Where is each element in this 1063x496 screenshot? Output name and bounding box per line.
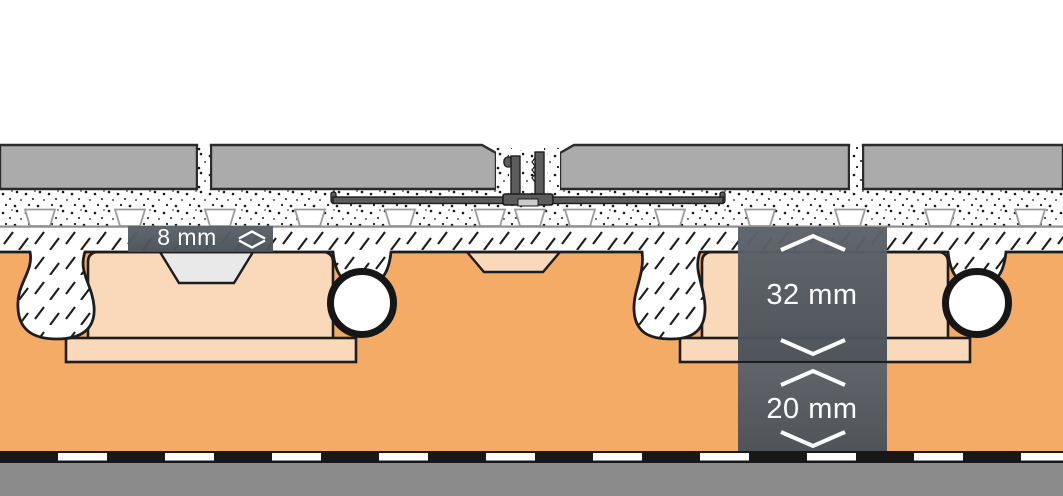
tile — [863, 145, 1063, 189]
floor-cross-section-diagram: 8 mm 32 mm 20 mm — [0, 0, 1063, 496]
anchoring-wing — [552, 197, 723, 204]
label-text: 8 mm — [157, 224, 217, 250]
diagram-canvas: 8 mm 32 mm 20 mm — [0, 0, 1063, 496]
stud-recess — [467, 252, 560, 272]
profile-insert — [518, 199, 538, 206]
grout-joint — [850, 147, 862, 189]
dimension-label-screed: 32 mm — [738, 227, 887, 361]
panel-flange — [66, 338, 356, 362]
grout-joint — [198, 147, 210, 189]
dimension-label-thinbed: 8 mm — [128, 224, 273, 252]
substrate-layer — [0, 462, 1063, 496]
dimension-label-panel: 20 mm — [738, 363, 887, 451]
separation-foil-layer — [0, 451, 1063, 463]
label-text: 32 mm — [766, 279, 857, 311]
foil-dashes — [0, 453, 1063, 461]
anchoring-wing — [333, 197, 504, 204]
label-text: 20 mm — [766, 393, 857, 425]
tile — [211, 145, 496, 189]
tile — [0, 145, 197, 189]
tile — [560, 145, 849, 189]
heating-pipe — [946, 272, 1009, 335]
studded-panel-layer — [0, 251, 1063, 451]
heating-pipe — [331, 272, 394, 335]
